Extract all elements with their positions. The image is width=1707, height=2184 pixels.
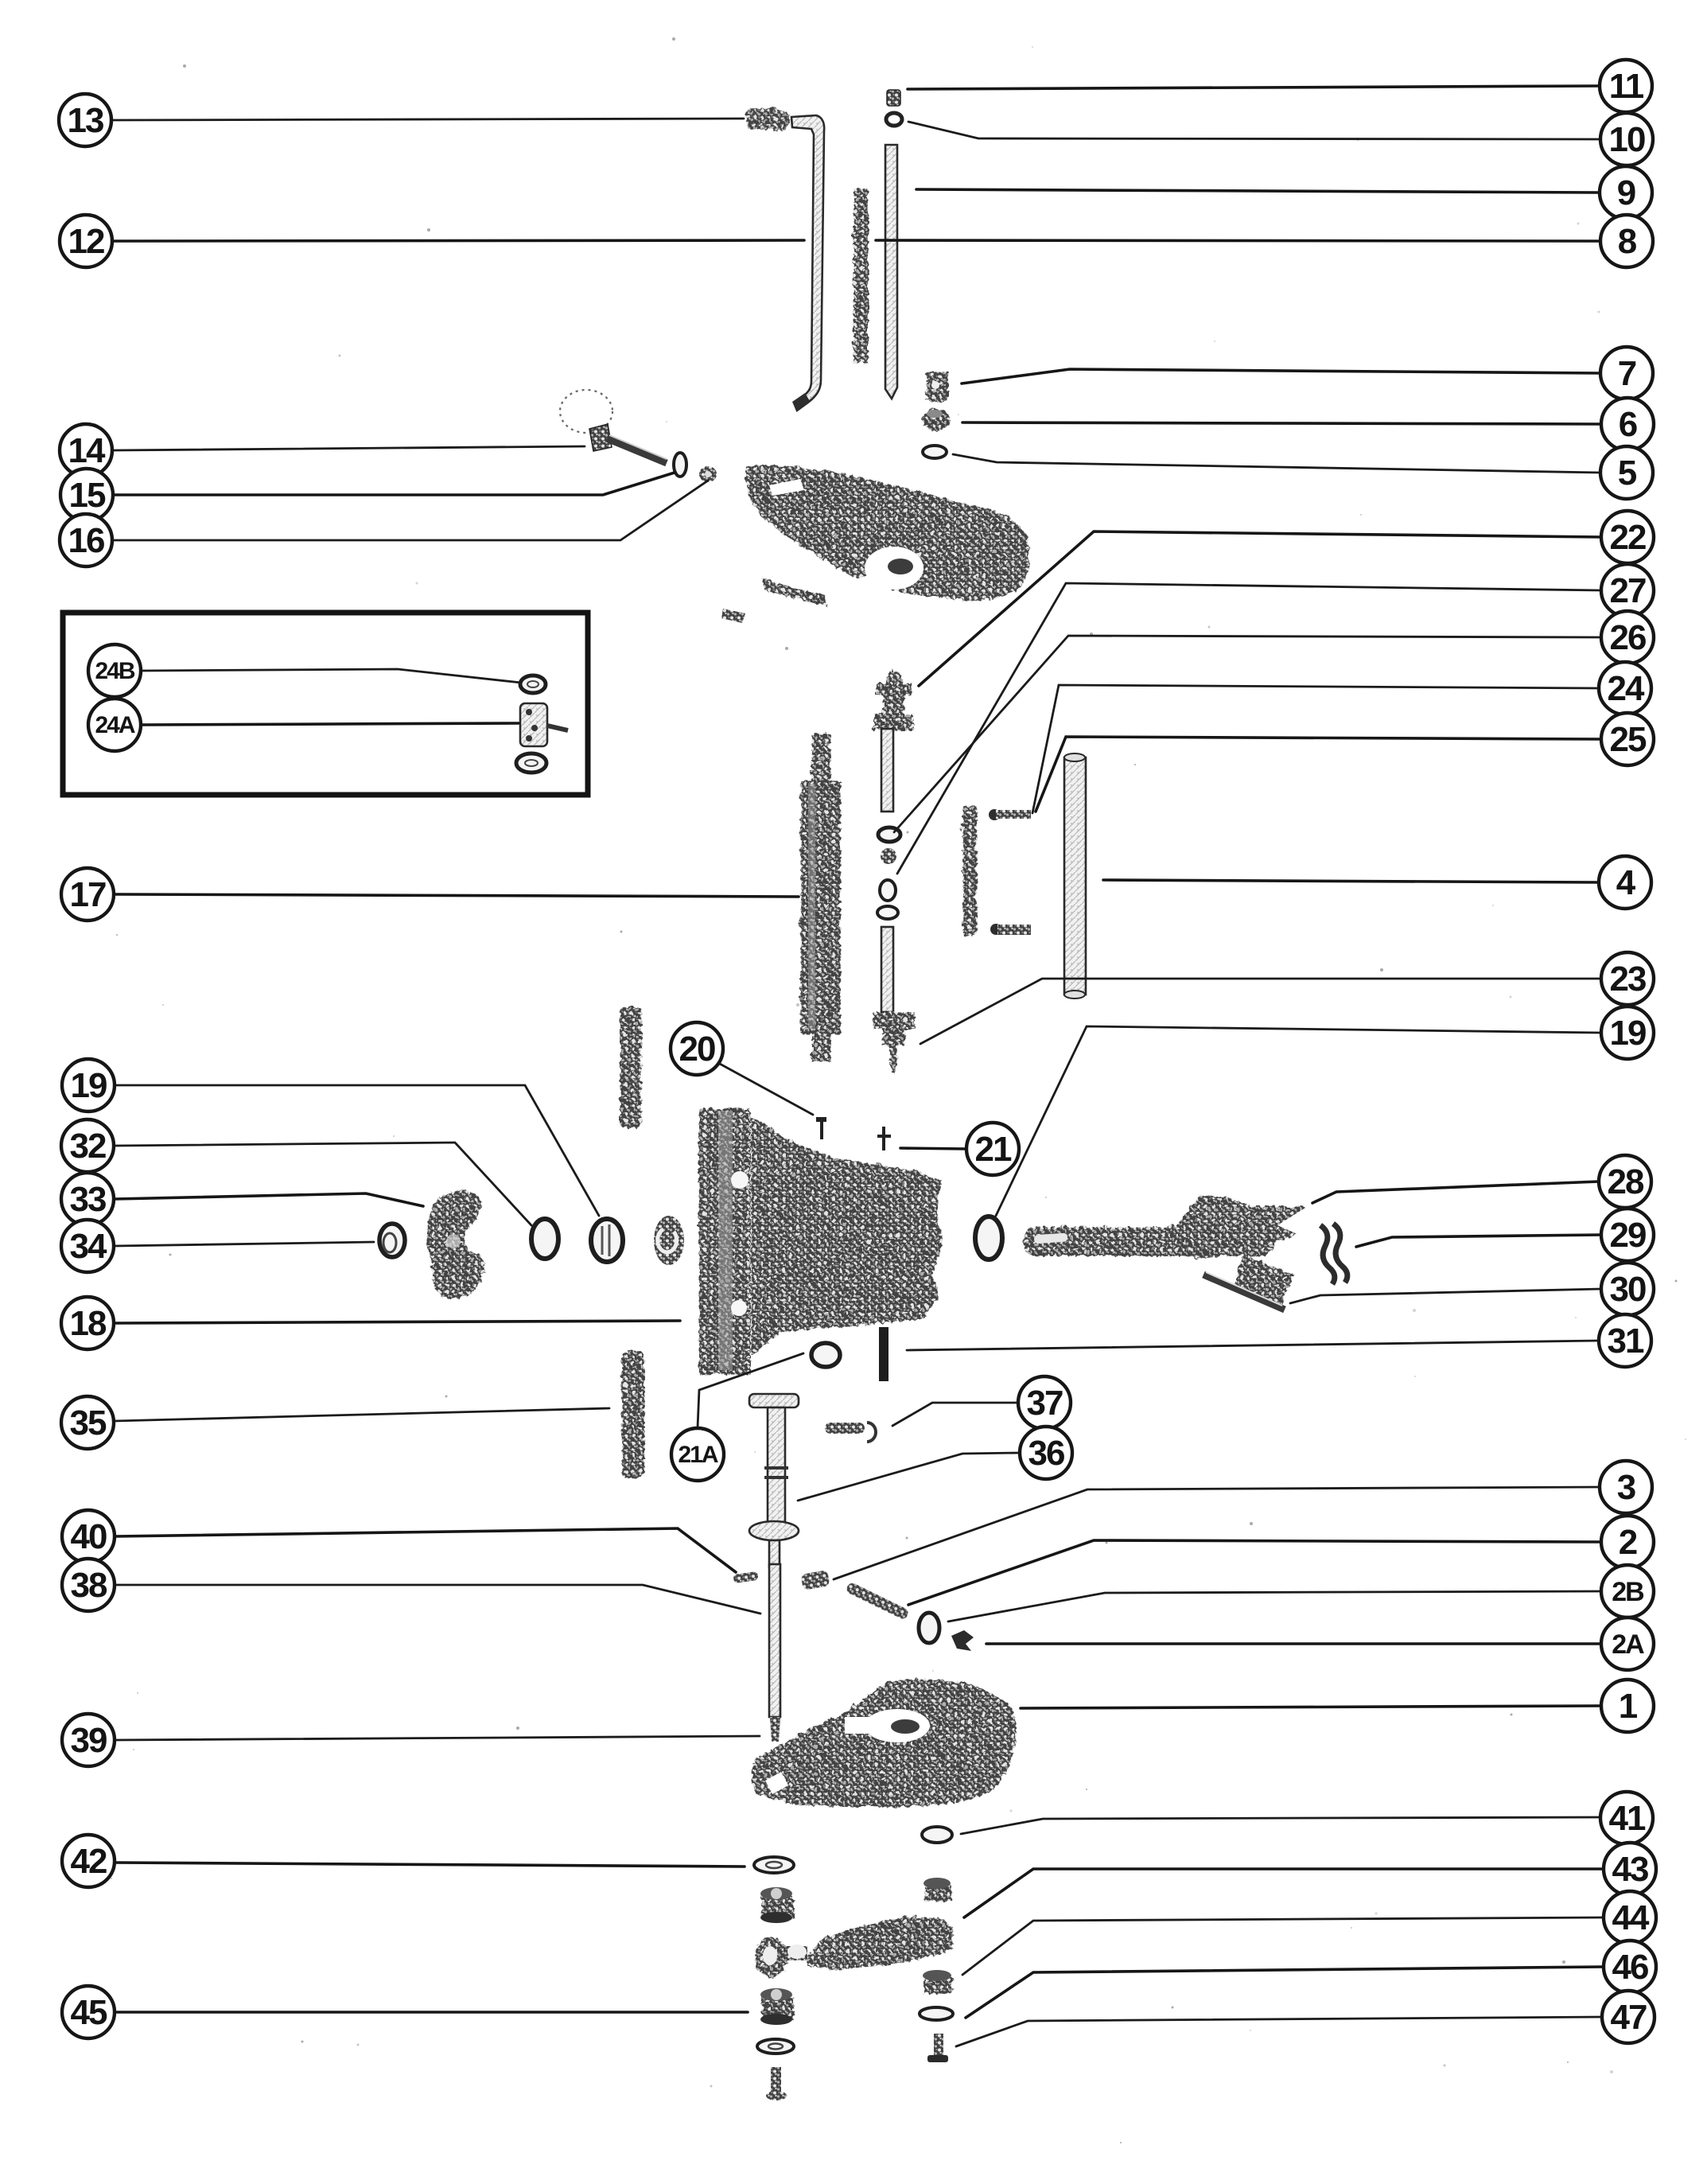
svg-text:30: 30 bbox=[1610, 1270, 1646, 1309]
svg-text:29: 29 bbox=[1610, 1216, 1646, 1255]
svg-text:24: 24 bbox=[1608, 669, 1645, 708]
svg-text:46: 46 bbox=[1612, 1948, 1648, 1987]
svg-text:26: 26 bbox=[1610, 618, 1646, 657]
svg-text:34: 34 bbox=[70, 1227, 107, 1266]
svg-text:12: 12 bbox=[68, 222, 104, 261]
svg-text:16: 16 bbox=[68, 521, 104, 560]
svg-text:24B: 24B bbox=[95, 658, 134, 684]
svg-text:15: 15 bbox=[69, 476, 106, 515]
svg-text:19: 19 bbox=[71, 1066, 107, 1105]
svg-text:20: 20 bbox=[679, 1030, 715, 1069]
svg-text:37: 37 bbox=[1027, 1384, 1063, 1423]
svg-text:21: 21 bbox=[975, 1130, 1012, 1169]
svg-text:2B: 2B bbox=[1612, 1577, 1644, 1607]
svg-text:21A: 21A bbox=[678, 1442, 717, 1468]
svg-text:44: 44 bbox=[1612, 1898, 1650, 1937]
svg-text:5: 5 bbox=[1618, 454, 1637, 492]
svg-text:17: 17 bbox=[70, 875, 106, 914]
svg-text:25: 25 bbox=[1610, 720, 1647, 759]
svg-text:19: 19 bbox=[1610, 1014, 1646, 1053]
svg-text:24A: 24A bbox=[95, 712, 134, 738]
svg-text:27: 27 bbox=[1610, 571, 1646, 610]
svg-text:2: 2 bbox=[1619, 1523, 1637, 1562]
svg-text:23: 23 bbox=[1610, 960, 1646, 999]
svg-text:43: 43 bbox=[1612, 1850, 1648, 1889]
svg-text:18: 18 bbox=[70, 1304, 107, 1343]
svg-text:1: 1 bbox=[1619, 1687, 1638, 1726]
svg-text:32: 32 bbox=[70, 1127, 106, 1166]
svg-text:39: 39 bbox=[71, 1721, 107, 1760]
svg-text:38: 38 bbox=[71, 1566, 107, 1605]
svg-text:11: 11 bbox=[1609, 67, 1644, 106]
svg-text:35: 35 bbox=[70, 1403, 107, 1442]
svg-text:28: 28 bbox=[1608, 1162, 1644, 1201]
svg-text:36: 36 bbox=[1028, 1434, 1064, 1473]
svg-text:4: 4 bbox=[1616, 863, 1636, 902]
svg-text:9: 9 bbox=[1617, 173, 1635, 212]
svg-text:14: 14 bbox=[68, 431, 106, 470]
svg-text:31: 31 bbox=[1608, 1322, 1644, 1361]
svg-text:45: 45 bbox=[71, 1993, 107, 2032]
svg-text:33: 33 bbox=[70, 1180, 106, 1219]
svg-text:10: 10 bbox=[1609, 120, 1645, 159]
svg-text:2A: 2A bbox=[1612, 1629, 1644, 1660]
svg-text:8: 8 bbox=[1618, 222, 1637, 261]
svg-text:3: 3 bbox=[1617, 1468, 1635, 1507]
svg-text:13: 13 bbox=[68, 101, 103, 140]
svg-text:6: 6 bbox=[1619, 405, 1637, 444]
svg-text:40: 40 bbox=[71, 1517, 107, 1556]
svg-text:47: 47 bbox=[1611, 1998, 1647, 2037]
svg-text:7: 7 bbox=[1618, 354, 1636, 393]
svg-text:22: 22 bbox=[1610, 518, 1646, 557]
svg-text:41: 41 bbox=[1609, 1799, 1646, 1838]
svg-text:42: 42 bbox=[71, 1842, 107, 1881]
